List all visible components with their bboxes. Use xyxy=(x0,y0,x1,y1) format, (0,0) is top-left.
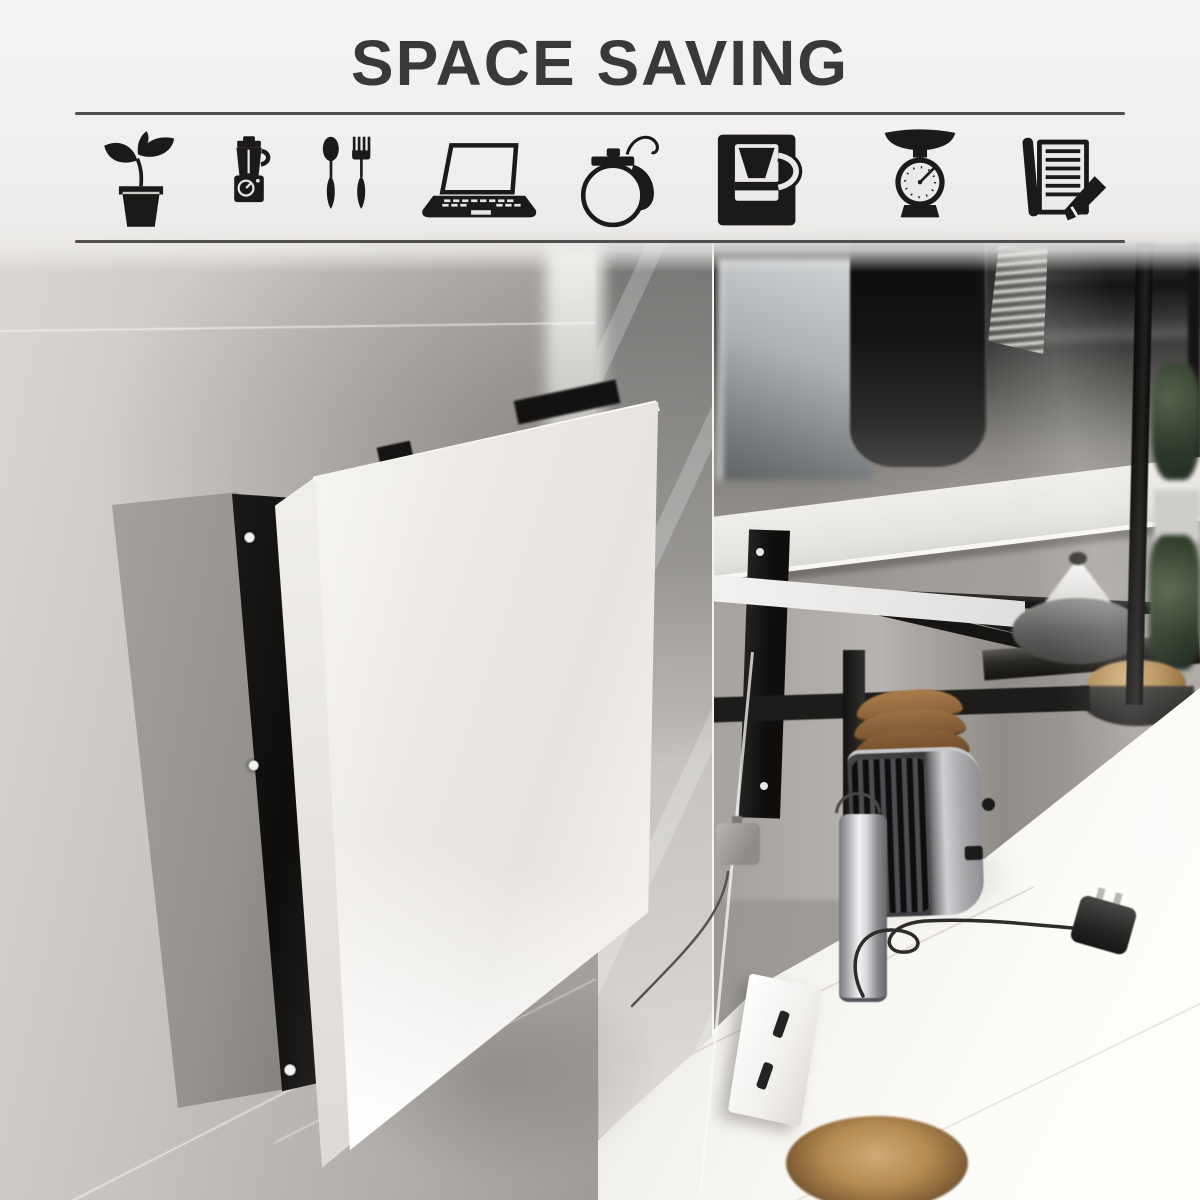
divider-line-bottom xyxy=(75,240,1125,243)
page-title: SPACE SAVING xyxy=(0,30,1200,97)
bracket-screw xyxy=(244,532,255,543)
space-saving-product-image: SPACE SAVING xyxy=(0,0,1200,1200)
plug-body xyxy=(1069,894,1138,956)
notepad-pencil-icon xyxy=(1014,132,1110,228)
potted-plant-icon xyxy=(95,126,187,230)
bracket-screw xyxy=(756,548,764,556)
wall-seam xyxy=(0,322,595,332)
bracket-screw xyxy=(284,1064,296,1076)
cutlery-icon xyxy=(308,124,384,230)
black-canister xyxy=(850,243,987,467)
window-reflection xyxy=(718,258,872,480)
blender-icon xyxy=(212,124,286,230)
divider-line-top xyxy=(75,112,1125,115)
glass-glare xyxy=(975,243,1200,863)
coffee-maker-icon xyxy=(716,132,820,228)
socket-slot xyxy=(772,1010,790,1039)
kitchen-scale-icon xyxy=(876,122,964,230)
socket-slot xyxy=(756,1061,774,1090)
teapot-icon xyxy=(565,130,679,232)
bracket-screw xyxy=(248,760,259,771)
laptop-icon xyxy=(422,140,540,230)
